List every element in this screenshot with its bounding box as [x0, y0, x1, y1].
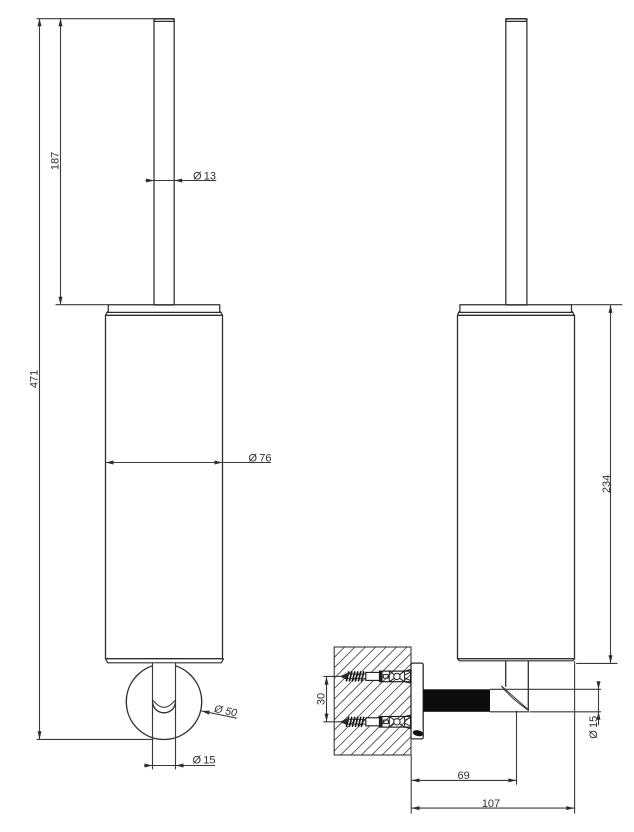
svg-text:69: 69 [457, 770, 469, 782]
svg-text:107: 107 [482, 798, 500, 810]
svg-text:234: 234 [601, 475, 613, 493]
svg-text:Ø 15: Ø 15 [193, 754, 216, 766]
svg-text:471: 471 [29, 370, 41, 388]
svg-text:Ø 15: Ø 15 [588, 716, 600, 739]
svg-text:Ø 76: Ø 76 [249, 452, 272, 464]
svg-text:Ø 13: Ø 13 [193, 170, 216, 182]
svg-text:30: 30 [315, 693, 327, 705]
svg-text:187: 187 [50, 152, 62, 170]
